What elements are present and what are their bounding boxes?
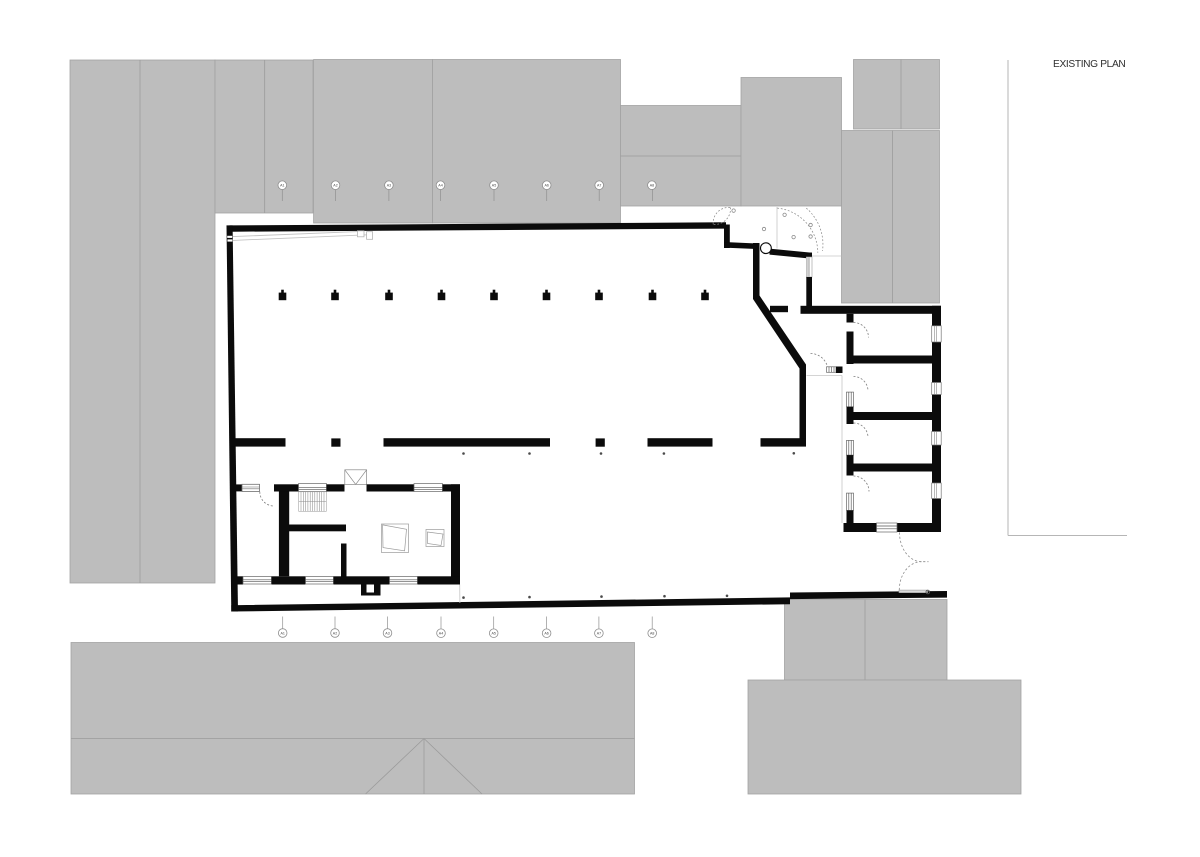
svg-text:A6: A6 (544, 184, 548, 188)
svg-text:A4: A4 (438, 184, 442, 188)
svg-text:A5: A5 (492, 184, 496, 188)
svg-text:A6: A6 (544, 632, 548, 636)
svg-text:A8: A8 (650, 184, 654, 188)
svg-text:A4: A4 (439, 632, 443, 636)
svg-text:A1: A1 (280, 631, 284, 635)
svg-text:A3: A3 (385, 631, 389, 635)
svg-text:A1: A1 (280, 184, 284, 188)
svg-text:A3: A3 (387, 184, 391, 188)
svg-text:A8: A8 (650, 632, 654, 636)
svg-text:A5: A5 (491, 632, 495, 636)
svg-text:A2: A2 (333, 184, 337, 188)
svg-text:A2: A2 (333, 631, 337, 635)
svg-text:EXISTING PLAN: EXISTING PLAN (1053, 59, 1125, 70)
svg-text:A7: A7 (597, 184, 601, 188)
svg-text:A7: A7 (597, 632, 601, 636)
